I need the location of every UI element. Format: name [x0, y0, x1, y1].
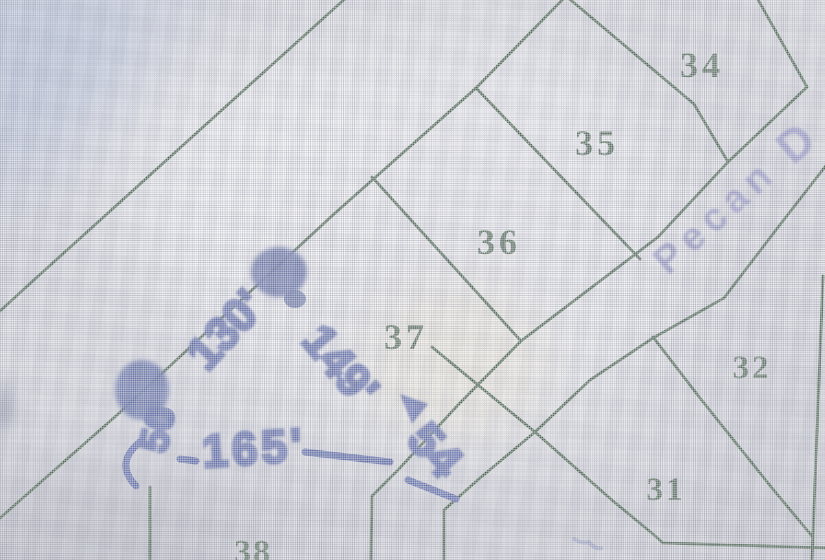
svg-text:37: 37 [384, 317, 428, 357]
svg-text:35: 35 [575, 123, 619, 163]
svg-text:36: 36 [477, 222, 521, 262]
svg-text:32: 32 [733, 350, 772, 386]
svg-text:34: 34 [680, 45, 724, 85]
svg-text:31: 31 [647, 472, 686, 508]
svg-text:D: D [766, 112, 825, 173]
svg-text:38: 38 [234, 534, 272, 560]
svg-text:165': 165' [200, 418, 307, 477]
